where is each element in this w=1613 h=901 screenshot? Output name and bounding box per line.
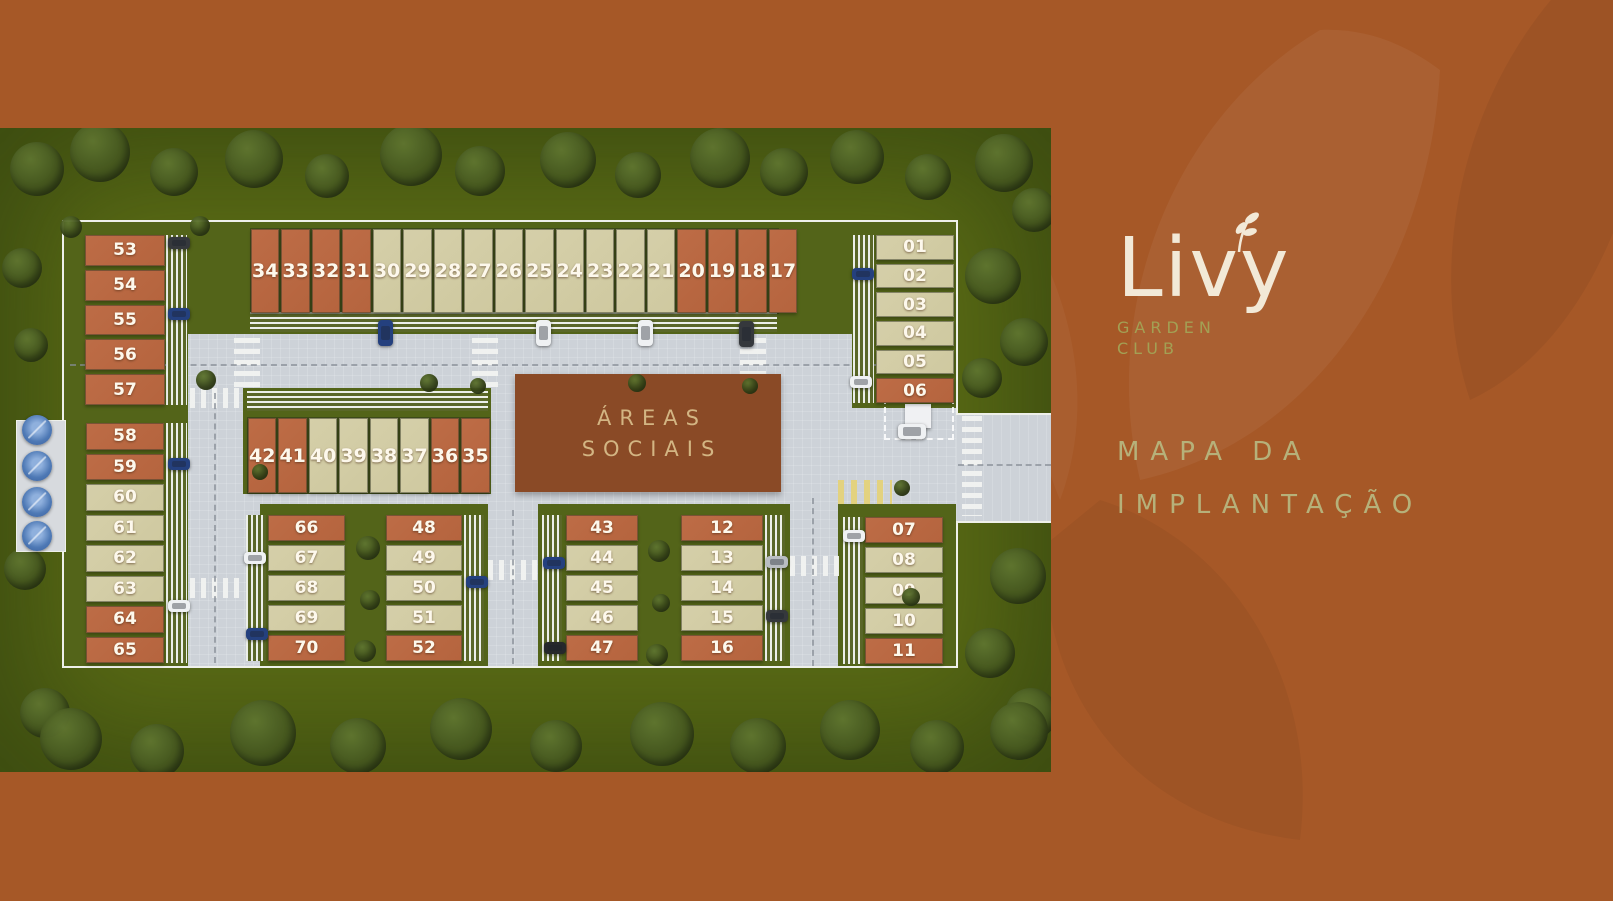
- site-plan: ÁREAS SOCIAIS 34333231302928272625242322…: [0, 128, 1051, 772]
- lot-26[interactable]: 26: [495, 229, 523, 313]
- tree-icon: [965, 248, 1021, 304]
- lot-number: 26: [496, 260, 522, 282]
- lot-51[interactable]: 51: [386, 605, 462, 631]
- car-icon: [168, 458, 190, 470]
- lot-43[interactable]: 43: [566, 515, 638, 541]
- lot-number: 15: [710, 608, 734, 628]
- lot-number: 40: [310, 445, 336, 467]
- lot-number: 46: [590, 608, 614, 628]
- lot-number: 42: [249, 445, 275, 467]
- tree-icon: [910, 720, 964, 772]
- lot-03[interactable]: 03: [876, 292, 954, 317]
- page: ÁREAS SOCIAIS 34333231302928272625242322…: [0, 0, 1613, 901]
- tree-icon: [330, 718, 386, 772]
- lane-marking: [214, 393, 218, 663]
- tree-icon: [150, 148, 198, 196]
- lot-24[interactable]: 24: [556, 229, 584, 313]
- tree-icon: [690, 128, 750, 188]
- lot-number: 49: [412, 548, 436, 568]
- lot-number: 02: [903, 266, 927, 286]
- lot-number: 56: [113, 345, 137, 365]
- lot-number: 36: [432, 445, 458, 467]
- lot-number: 58: [113, 426, 137, 446]
- lot-58[interactable]: 58: [86, 423, 164, 450]
- parking-strip: [166, 235, 187, 405]
- lot-number: 21: [648, 260, 674, 282]
- lane-marking: [70, 364, 950, 368]
- lot-59[interactable]: 59: [86, 454, 164, 481]
- lot-27[interactable]: 27: [464, 229, 492, 313]
- lot-number: 55: [113, 310, 137, 330]
- lot-41[interactable]: 41: [278, 418, 306, 493]
- tree-icon: [1000, 318, 1048, 366]
- yellow-crosswalk: [838, 480, 892, 504]
- lot-number: 34: [252, 260, 278, 282]
- lot-55[interactable]: 55: [85, 305, 165, 336]
- tree-icon: [305, 154, 349, 198]
- tree-icon: [430, 698, 492, 760]
- leaf-sprig-icon: [1219, 212, 1263, 252]
- lot-12[interactable]: 12: [681, 515, 763, 541]
- parking-strip: [542, 515, 562, 661]
- lot-number: 23: [587, 260, 613, 282]
- tree-icon: [4, 548, 46, 590]
- tree-icon: [60, 216, 82, 238]
- tree-icon: [830, 130, 884, 184]
- lot-number: 51: [412, 608, 436, 628]
- car-icon: [543, 557, 565, 569]
- lane-marking: [812, 498, 816, 666]
- lot-number: 14: [710, 578, 734, 598]
- logo-subtitle: GARDEN CLUB: [1117, 318, 1423, 360]
- lot-39[interactable]: 39: [339, 418, 367, 493]
- tree-icon: [420, 374, 438, 392]
- lot-54[interactable]: 54: [85, 270, 165, 301]
- lot-34[interactable]: 34: [251, 229, 279, 313]
- lot-group-12-16: 1213141516: [681, 515, 763, 661]
- car-icon: [544, 642, 566, 654]
- lot-48[interactable]: 48: [386, 515, 462, 541]
- lot-15[interactable]: 15: [681, 605, 763, 631]
- lot-number: 63: [113, 579, 137, 599]
- tree-icon: [380, 128, 442, 186]
- lot-45[interactable]: 45: [566, 575, 638, 601]
- lot-01[interactable]: 01: [876, 235, 954, 260]
- lot-20[interactable]: 20: [677, 229, 705, 313]
- lot-61[interactable]: 61: [86, 515, 164, 542]
- tree-icon: [742, 378, 758, 394]
- lot-number: 16: [710, 638, 734, 658]
- tree-icon: [10, 142, 64, 196]
- lot-66[interactable]: 66: [268, 515, 345, 541]
- lot-number: 32: [313, 260, 339, 282]
- lot-number: 48: [412, 518, 436, 538]
- lot-number: 69: [295, 608, 319, 628]
- logo-subtitle-club: CLUB: [1117, 339, 1423, 360]
- lot-group-66-70: 6667686970: [268, 515, 345, 661]
- car-icon: [739, 321, 754, 347]
- lot-group-58-65: 5859606162636465: [86, 423, 164, 663]
- tree-icon: [1012, 188, 1051, 232]
- lot-28[interactable]: 28: [434, 229, 462, 313]
- lot-36[interactable]: 36: [431, 418, 459, 493]
- lot-02[interactable]: 02: [876, 264, 954, 289]
- lot-47[interactable]: 47: [566, 635, 638, 661]
- lot-60[interactable]: 60: [86, 484, 164, 511]
- tree-icon: [356, 536, 380, 560]
- logo-subtitle-garden: GARDEN: [1117, 318, 1423, 339]
- lot-44[interactable]: 44: [566, 545, 638, 571]
- car-icon: [638, 320, 653, 346]
- tree-icon: [540, 132, 596, 188]
- pool-umbrella-icon: [22, 451, 52, 481]
- tree-icon: [905, 154, 951, 200]
- lot-07[interactable]: 07: [865, 517, 943, 543]
- tree-icon: [902, 588, 920, 606]
- lot-65[interactable]: 65: [86, 637, 164, 664]
- lot-number: 07: [892, 520, 916, 540]
- lot-number: 43: [590, 518, 614, 538]
- lot-number: 28: [435, 260, 461, 282]
- lot-number: 38: [371, 445, 397, 467]
- lot-23[interactable]: 23: [586, 229, 614, 313]
- lot-number: 11: [892, 641, 916, 661]
- lot-group-35-42: 4241403938373635: [247, 417, 490, 494]
- lot-number: 57: [113, 380, 137, 400]
- lot-number: 37: [401, 445, 427, 467]
- lot-number: 53: [113, 240, 137, 260]
- lot-53[interactable]: 53: [85, 235, 165, 266]
- lot-number: 04: [903, 323, 927, 343]
- tree-icon: [530, 720, 582, 772]
- pool-umbrella-icon: [22, 415, 52, 445]
- lot-number: 25: [526, 260, 552, 282]
- lot-number: 29: [404, 260, 430, 282]
- car-icon: [168, 308, 190, 320]
- lot-40[interactable]: 40: [309, 418, 337, 493]
- lot-number: 66: [295, 518, 319, 538]
- tree-icon: [615, 152, 661, 198]
- lot-number: 30: [374, 260, 400, 282]
- lot-number: 62: [113, 548, 137, 568]
- page-title-line1: MAPA DA: [1117, 426, 1423, 479]
- tree-icon: [360, 590, 380, 610]
- pool-umbrella-icon: [22, 487, 52, 517]
- lot-number: 64: [113, 609, 137, 629]
- tree-icon: [2, 248, 42, 288]
- tree-icon: [894, 480, 910, 496]
- car-icon: [536, 320, 551, 346]
- lot-number: 33: [282, 260, 308, 282]
- lot-number: 54: [113, 275, 137, 295]
- lot-number: 35: [462, 445, 488, 467]
- lot-number: 19: [709, 260, 735, 282]
- car-icon: [466, 576, 488, 588]
- lot-25[interactable]: 25: [525, 229, 553, 313]
- tree-icon: [975, 134, 1033, 192]
- lot-18[interactable]: 18: [738, 229, 766, 313]
- tree-icon: [630, 702, 694, 766]
- car-icon: [898, 424, 926, 439]
- tree-icon: [354, 640, 376, 662]
- lot-19[interactable]: 19: [708, 229, 736, 313]
- lot-13[interactable]: 13: [681, 545, 763, 571]
- lot-10[interactable]: 10: [865, 608, 943, 634]
- lot-group-01-06: 010203040506: [876, 235, 954, 403]
- brand-panel: Livy GARDEN CLUB MAPA DA IMPLANTAÇÃO: [1117, 228, 1423, 532]
- lot-50[interactable]: 50: [386, 575, 462, 601]
- lot-22[interactable]: 22: [616, 229, 644, 313]
- lot-63[interactable]: 63: [86, 576, 164, 603]
- lot-number: 39: [340, 445, 366, 467]
- lot-62[interactable]: 62: [86, 545, 164, 572]
- car-icon: [168, 600, 190, 612]
- tree-icon: [40, 708, 102, 770]
- livy-logo: Livy: [1117, 228, 1423, 310]
- lot-30[interactable]: 30: [373, 229, 401, 313]
- lot-46[interactable]: 46: [566, 605, 638, 631]
- lot-08[interactable]: 08: [865, 547, 943, 573]
- tree-icon: [962, 358, 1002, 398]
- car-icon: [850, 376, 872, 388]
- lot-number: 08: [892, 550, 916, 570]
- car-icon: [378, 320, 393, 346]
- lot-17[interactable]: 17: [769, 229, 797, 313]
- tree-icon: [470, 378, 486, 394]
- tree-icon: [990, 702, 1048, 760]
- tree-icon: [646, 644, 668, 666]
- areas-sociais-label-line2: SOCIAIS: [574, 437, 723, 461]
- lot-number: 17: [770, 260, 796, 282]
- car-icon: [766, 556, 788, 568]
- lot-number: 61: [113, 518, 137, 538]
- lot-11[interactable]: 11: [865, 638, 943, 664]
- car-icon: [843, 530, 865, 542]
- car-icon: [244, 552, 266, 564]
- lot-49[interactable]: 49: [386, 545, 462, 571]
- lot-21[interactable]: 21: [647, 229, 675, 313]
- lot-67[interactable]: 67: [268, 545, 345, 571]
- lot-number: 06: [903, 381, 927, 401]
- lot-number: 60: [113, 487, 137, 507]
- areas-sociais-block: ÁREAS SOCIAIS: [515, 374, 781, 492]
- parking-strip: [250, 312, 777, 332]
- lot-number: 20: [678, 260, 704, 282]
- tree-icon: [648, 540, 670, 562]
- lot-42[interactable]: 42: [248, 418, 276, 493]
- tree-icon: [628, 374, 646, 392]
- lot-number: 31: [343, 260, 369, 282]
- lot-number: 65: [113, 640, 137, 660]
- lot-number: 50: [412, 578, 436, 598]
- parking-strip: [464, 515, 484, 661]
- lot-70[interactable]: 70: [268, 635, 345, 661]
- lot-number: 05: [903, 352, 927, 372]
- lot-number: 52: [412, 638, 436, 658]
- lot-number: 44: [590, 548, 614, 568]
- lot-number: 70: [295, 638, 319, 658]
- areas-sociais-label-line1: ÁREAS: [589, 406, 707, 430]
- lot-14[interactable]: 14: [681, 575, 763, 601]
- lot-number: 27: [465, 260, 491, 282]
- lot-number: 01: [903, 237, 927, 257]
- tree-icon: [225, 130, 283, 188]
- livy-logo-text: Livy: [1117, 221, 1291, 316]
- page-title-line2: IMPLANTAÇÃO: [1117, 479, 1423, 532]
- tree-icon: [760, 148, 808, 196]
- tree-icon: [252, 464, 268, 480]
- lot-number: 47: [590, 638, 614, 658]
- tree-icon: [652, 594, 670, 612]
- tree-icon: [196, 370, 216, 390]
- tree-icon: [190, 216, 210, 236]
- lane-marking: [512, 510, 516, 664]
- lot-68[interactable]: 68: [268, 575, 345, 601]
- lot-number: 22: [617, 260, 643, 282]
- lot-number: 45: [590, 578, 614, 598]
- lot-33[interactable]: 33: [281, 229, 309, 313]
- lot-57[interactable]: 57: [85, 374, 165, 405]
- lot-38[interactable]: 38: [370, 418, 398, 493]
- lot-37[interactable]: 37: [400, 418, 428, 493]
- lot-group-48-52: 4849505152: [386, 515, 462, 661]
- lot-number: 03: [903, 295, 927, 315]
- car-icon: [246, 628, 268, 640]
- parking-strip: [765, 515, 785, 661]
- lot-group-43-47: 4344454647: [566, 515, 638, 661]
- lot-04[interactable]: 04: [876, 321, 954, 346]
- car-icon: [852, 268, 874, 280]
- lot-32[interactable]: 32: [312, 229, 340, 313]
- lot-29[interactable]: 29: [403, 229, 431, 313]
- lot-number: 24: [557, 260, 583, 282]
- car-icon: [168, 237, 190, 249]
- lane-marking: [958, 464, 1051, 468]
- tree-icon: [730, 718, 786, 772]
- lot-64[interactable]: 64: [86, 606, 164, 633]
- lot-number: 67: [295, 548, 319, 568]
- page-title: MAPA DA IMPLANTAÇÃO: [1117, 426, 1423, 533]
- lot-35[interactable]: 35: [461, 418, 489, 493]
- car-icon: [766, 610, 788, 622]
- parking-strip: [247, 391, 488, 411]
- lot-16[interactable]: 16: [681, 635, 763, 661]
- tree-icon: [14, 328, 48, 362]
- lot-group-17-34: 343332313029282726252423222120191817: [250, 228, 779, 314]
- lot-group-53-57: 5354555657: [85, 235, 165, 405]
- lot-number: 12: [710, 518, 734, 538]
- lot-31[interactable]: 31: [342, 229, 370, 313]
- lot-05[interactable]: 05: [876, 350, 954, 375]
- lot-69[interactable]: 69: [268, 605, 345, 631]
- lot-06[interactable]: 06: [876, 378, 954, 403]
- lot-56[interactable]: 56: [85, 339, 165, 370]
- lot-number: 41: [279, 445, 305, 467]
- lot-number: 13: [710, 548, 734, 568]
- tree-icon: [965, 628, 1015, 678]
- pool-umbrella-icon: [22, 521, 52, 551]
- lot-number: 18: [739, 260, 765, 282]
- tree-icon: [230, 700, 296, 766]
- tree-icon: [130, 724, 184, 772]
- tree-icon: [455, 146, 505, 196]
- tree-icon: [820, 700, 880, 760]
- lot-number: 10: [892, 611, 916, 631]
- lot-number: 59: [113, 457, 137, 477]
- lot-52[interactable]: 52: [386, 635, 462, 661]
- tree-icon: [70, 128, 130, 182]
- tree-icon: [990, 548, 1046, 604]
- lot-number: 68: [295, 578, 319, 598]
